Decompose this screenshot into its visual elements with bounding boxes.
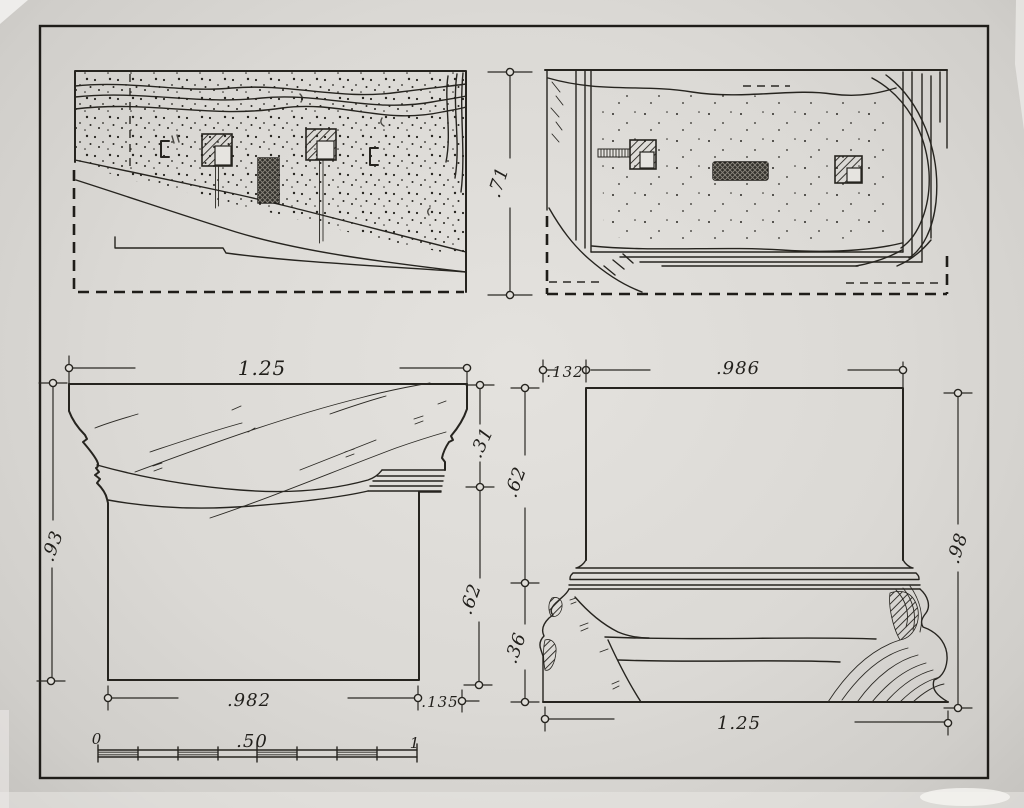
dimension-endpoint [521, 579, 528, 586]
torus-striations [828, 586, 944, 702]
dim-capital-top-width: 1.25 [65, 356, 470, 383]
torus-lines [605, 637, 876, 662]
dim-base-upper-height: .62 [501, 384, 539, 586]
dimension-endpoint [463, 364, 470, 371]
dowel-hole-right [317, 141, 334, 159]
right-hatch-patch [890, 591, 919, 640]
dimension-endpoint [458, 697, 465, 704]
dim-label-base-overall-height: .98 [943, 530, 973, 567]
dim-label-top-width: 1.25 [238, 356, 287, 380]
dim-label-base-bottom-width: 1.25 [717, 713, 761, 734]
elevation-column-base: .132 .986 .62 .36 .98 1.25 [501, 358, 973, 735]
dim-label-cap-height: .31 [466, 424, 498, 462]
dim-label-overall-height: .93 [38, 528, 69, 565]
dimension-endpoint [899, 366, 906, 373]
left-break-patch-upper [549, 597, 562, 616]
scale-bar-fill-segments [98, 752, 377, 755]
dimension-endpoint [476, 381, 483, 388]
dimension-endpoint [954, 704, 961, 711]
dimension-endpoint [954, 389, 961, 396]
dimension-endpoint [541, 715, 548, 722]
dim-base-shaft-width: .986 [586, 358, 907, 387]
bottom-band-lines [591, 252, 922, 266]
edge-highlight-bottom [0, 792, 1024, 808]
left-strip-texture [551, 82, 563, 142]
dimension-endpoint [47, 677, 54, 684]
dimension-endpoint [475, 681, 482, 688]
dim-label-plan-height: .71 [484, 164, 514, 201]
clamp-cutting-center [713, 162, 768, 180]
dimension-endpoint [49, 379, 56, 386]
scale-bar-ticks [98, 744, 417, 762]
right-broken-profile [920, 589, 948, 702]
dim-base-projection: .132 [539, 360, 589, 382]
scale-label-zero: 0 [92, 730, 103, 748]
plan-soffit-block [74, 71, 466, 292]
dim-base-overall-height: .98 [943, 389, 973, 711]
scale-label-half: .50 [236, 731, 268, 752]
dim-base-bottom-width: 1.25 [541, 707, 951, 735]
left-break-boundary [575, 597, 649, 702]
break-lines [95, 383, 446, 518]
plan-base-top [545, 70, 947, 294]
dowel-hole-right [847, 168, 861, 182]
clamp-cutting-center [258, 158, 279, 203]
scale-bar: 0 .50 1 [92, 730, 421, 762]
dimension-endpoint [506, 68, 513, 75]
dimension-endpoint [944, 719, 951, 726]
dim-label-base-upper-height: .62 [501, 464, 532, 501]
dim-label-base-shaft-width: .986 [716, 358, 760, 379]
corner-highlight-bottom-right [920, 788, 1010, 806]
left-break-patch-lower [544, 640, 557, 671]
edge-highlight-left [0, 710, 9, 808]
dimension-endpoint [65, 364, 72, 371]
ruler-scale-mark [598, 149, 630, 157]
dimension-endpoint [104, 694, 111, 701]
measured-drawing-svg: .71 [0, 0, 1024, 808]
corner-highlight-top-left [0, 0, 28, 24]
clamp-cutting-hatch [258, 158, 279, 203]
dimension-endpoint [521, 384, 528, 391]
dim-label-shaft-width: .982 [227, 690, 271, 711]
dim-plan-height: .71 [484, 68, 532, 298]
dim-label-projection: .135 [421, 693, 458, 711]
dim-capital-overall-height: .93 [37, 379, 68, 684]
surface-ticks [570, 598, 619, 689]
clamp-cutting-hatch [713, 162, 768, 180]
dim-label-shaft-height: .62 [456, 581, 487, 618]
natural-edge-bottom [592, 243, 902, 251]
shaft-outline [586, 388, 903, 560]
dimension-endpoint [521, 698, 528, 705]
dim-capital-cap-height: .31 [466, 381, 498, 490]
dimension-endpoint [476, 483, 483, 490]
left-profile [69, 384, 108, 680]
right-profile [442, 384, 467, 470]
shaft-outline [108, 492, 419, 680]
dim-capital-shaft-height: .62 [456, 491, 492, 689]
elevation-pier-capital: 1.25 .31 .62 .93 .982 .135 [37, 356, 498, 712]
dowel-hole-left [640, 152, 654, 168]
dim-label-base-lower-height: .36 [501, 630, 532, 667]
dimension-endpoint [506, 291, 513, 298]
dowel-hole-left [215, 146, 231, 165]
edge-highlight-right [1015, 0, 1024, 130]
dim-capital-shaft-width: .982 [104, 686, 421, 711]
break-boundary [97, 465, 382, 508]
scanned-drawing-photo: .71 [0, 0, 1024, 808]
apophyge-fillets [569, 560, 920, 589]
dim-base-lower-height: .36 [501, 587, 539, 706]
dim-capital-projection: .135 [421, 690, 479, 712]
left-band-lines [547, 70, 591, 252]
dim-label-base-projection: .132 [546, 363, 583, 381]
